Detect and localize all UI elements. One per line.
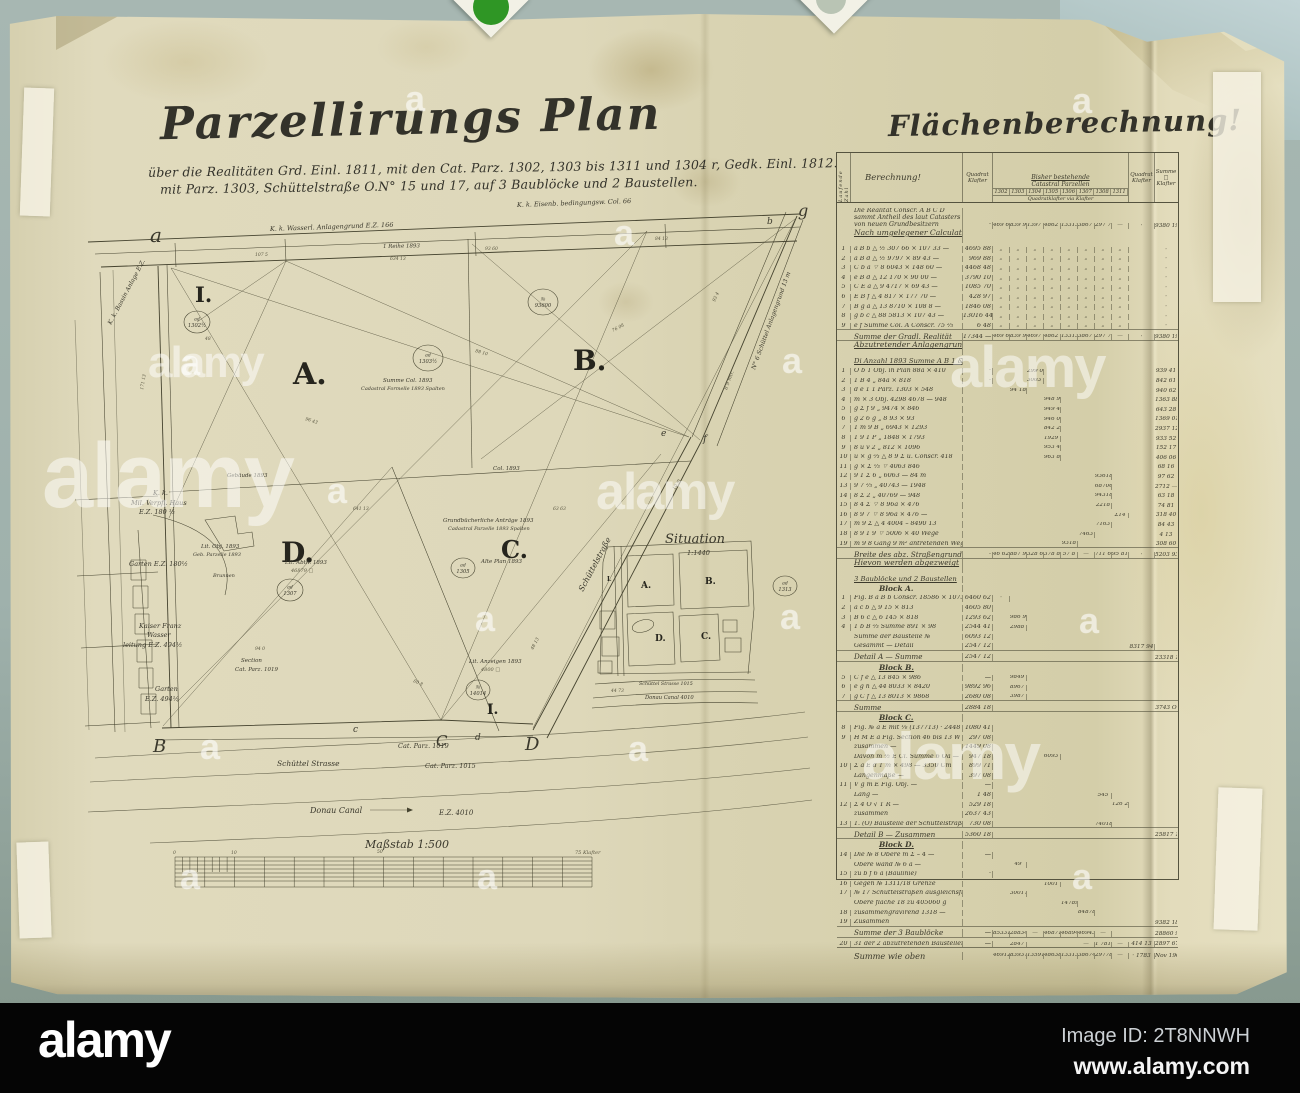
table-cell: — (1112, 223, 1129, 229)
table-cell: 469 62 (993, 334, 1010, 340)
table-cell: · (993, 596, 1010, 602)
table-cell: „ (1061, 266, 1078, 272)
table-cell: g C f △ 13 8013 × 9868 (851, 694, 963, 701)
table-cell: 13 (837, 483, 851, 490)
table-cell: 8967 81 (1010, 685, 1027, 691)
map-label: 641 13 (353, 506, 369, 512)
table-cell: Block D. (851, 841, 963, 849)
table-cell: 9849 71 (1010, 675, 1027, 681)
table-row: 4m × 3 Obj. 4298 4678 — 948948 961363 88 (837, 394, 1178, 404)
table-cell: Längenmaße — (851, 773, 963, 780)
table-cell: Summe der Baustelle № (851, 634, 963, 641)
table-cell: 5 (837, 284, 851, 291)
group-header-line2: Catastral Parzellen (993, 181, 1128, 188)
table-cell: 4695 88 (963, 246, 993, 253)
table-cell: 6093 12 (1044, 754, 1061, 760)
table-cell: „ (1095, 304, 1112, 310)
table-cell: „ (1044, 266, 1061, 272)
map-label: Lit. Anzeigen 1893 (468, 659, 522, 665)
table-cell: „ (1112, 266, 1129, 272)
table-cell: 1 9 1 P „ 1848 × 1793 (851, 435, 963, 442)
table-cell: 13313 68 (1061, 334, 1078, 340)
table-cell: zusammen — (851, 744, 963, 751)
table-cell: 899 71 (963, 763, 993, 770)
table-cell: „ (1044, 323, 1061, 329)
table-row: 41 b B ⅔ Summe 891 × 982544 412988 16 (837, 621, 1178, 631)
table-cell: Di Anzahl 1893 Summe A B 1 & 2 (851, 358, 963, 365)
table-row: 148 Σ 2 „ 40769 — 9489431863 18 (837, 490, 1178, 500)
table-cell: 318 40 (1155, 512, 1177, 518)
map-label: 63 63 (553, 506, 566, 512)
table-cell: 6 (837, 416, 851, 423)
table-cell: 1363 88 (1155, 397, 1177, 403)
table-cell: 8 9 1 9 ⌔ 5006 × 40 Wege (851, 531, 963, 538)
table-cell: H M E a Fig. Section 46 bis 13 W — (851, 735, 963, 742)
table-cell: 428 97 (963, 294, 993, 301)
table-cell: 1846 08 (963, 304, 993, 311)
map-label: 44 73 (610, 688, 624, 694)
table-cell: „ (1027, 247, 1044, 253)
table-cell: 947 18 (963, 754, 993, 761)
table-cell: · (1155, 294, 1177, 300)
table-cell: 3867 47 (1078, 334, 1095, 340)
table-cell: 68706 (1095, 484, 1112, 490)
table-cell: e B d △ 12 170 × 90 00 — (851, 275, 963, 282)
table-cell: 5 (837, 406, 851, 413)
map-label: Wasser (147, 631, 172, 639)
table-cell: „ (1010, 314, 1027, 320)
table-cell: 328 60 (1027, 552, 1044, 558)
table-cell: 1 48 (963, 792, 993, 799)
table-cell: 8 (837, 313, 851, 320)
table-cell: „ (1010, 256, 1027, 262)
table-cell: 97 62 (1155, 474, 1177, 480)
table-cell: „ (1112, 247, 1129, 253)
table-cell: „ (1010, 276, 1027, 282)
table-row: Die Realität Conscr. A B C D sammt Anthe… (837, 203, 1178, 229)
parcel-number-value: 1307 (283, 591, 297, 597)
table-cell: „ (1078, 247, 1095, 253)
table-cell: Σ a E d T m × 498 — 3350 Cm (851, 763, 963, 770)
table-cell: „ (1027, 285, 1044, 291)
table-cell: 11 (837, 782, 851, 789)
table-row: 14Die № 8 Obere m Σ – 4 —— (837, 849, 1178, 859)
table-cell: 842 28 (1044, 426, 1061, 432)
table-row: 8g b c △ 88 5813 × 107 43 —13016 44„„„„„… (837, 310, 1178, 320)
table-cell: 13016 44 (963, 313, 993, 320)
table-cell: 16 (837, 881, 851, 888)
table-cell: 9892 96 (963, 684, 993, 691)
table-cell: 1 781 (1095, 942, 1112, 948)
table-row: Obere wand № 6 a —49 (837, 859, 1178, 869)
map-label: Cadastral Formelle 1893 Spalten (361, 386, 445, 392)
table-cell: 74 81 (1155, 503, 1177, 509)
table-cell: „ (1078, 266, 1095, 272)
table-cell: 839 90½ (1010, 223, 1027, 229)
table-cell: a c b △ 9 15 × 813 (851, 605, 963, 612)
table-cell: „ (1061, 314, 1078, 320)
table-row: 9H M E a Fig. Section 46 bis 13 W —297 0… (837, 732, 1178, 742)
table-cell: 848787 (1078, 910, 1095, 916)
table-cell: 20 (837, 941, 851, 948)
table-row: Summe der Baustelle №6093 12 (837, 631, 1178, 641)
table-cell: 5203 93 (1155, 552, 1177, 558)
table-cell: Die Realität Conscr. A B C D sammt Anthe… (851, 208, 963, 229)
table-cell: 2897 67 (1155, 941, 1177, 947)
table-cell: 9382 18 (1155, 920, 1177, 926)
table-cell: 3 (837, 265, 851, 272)
table-cell: „ (1061, 276, 1078, 282)
parcel-number-label: ad (782, 581, 788, 587)
table-cell: Σ 4 O √ T R — (851, 802, 963, 809)
table-cell: g Σ f 9 „ 9474 × 846 (851, 406, 963, 413)
table-cell: „ (1061, 304, 1078, 310)
table-cell: d e 1 1 Parz. 1303 × 548 (851, 387, 963, 394)
table-cell: 4605 80 (963, 605, 993, 612)
table-cell: — (1112, 953, 1129, 959)
table-cell: Hievon werden abgezweigt (851, 559, 963, 573)
table-cell: — (963, 675, 993, 682)
table-cell: „ (1078, 256, 1095, 262)
alamy-url-text: www.alamy.com (1074, 1053, 1250, 1080)
table-row: Nach umgelegener Calculation (837, 229, 1178, 243)
table-row: 19Zusammen9382 18 (837, 916, 1178, 926)
table-cell: e f Summe Col. A Conscr. 75 ⅔ (851, 323, 963, 330)
map-label: Cat. Parz. 1015 (425, 762, 476, 770)
table-cell: „ (1027, 314, 1044, 320)
table-row: 3C b a ⌔ 8 6043 × 148 60 —4468 48„„„„„„„… (837, 262, 1178, 272)
table-cell: 19 (837, 919, 851, 926)
table-cell: „ (1112, 323, 1129, 329)
table-cell: 5 (837, 675, 851, 682)
table-cell: 953 42 (1044, 445, 1061, 451)
table-cell: „ (1095, 285, 1112, 291)
table-cell: 1 m 9 B „ 6943 × 1293 (851, 425, 963, 432)
table-cell: — (963, 941, 993, 948)
table-cell: 3867 47 (1078, 223, 1095, 229)
table-cell: 10 (837, 454, 851, 461)
mounting-tape-bottom-left (16, 841, 51, 938)
map-label: E.Z. 4010 (438, 809, 474, 817)
table-cell: 94318 (1095, 493, 1112, 499)
table-cell: 85331 (993, 931, 1010, 937)
map-label: Col. 1893 (493, 466, 520, 472)
map-label: 80 8 (412, 678, 424, 688)
table-row: Davon m ½ E Cl. Summe 6 Oa —947 186093 1… (837, 751, 1178, 761)
table-cell: 1. (O) Baustelle der Schüttelstraße № (851, 821, 963, 828)
map-label: 94 0 (255, 646, 265, 652)
table-cell: Detail B — Zusammen (851, 831, 963, 839)
table-row: 7B g a △ 13 8710 × 108 8 —1846 08„„„„„„„… (837, 301, 1178, 311)
table-cell: 469431 (1078, 931, 1095, 937)
table-cell: Nach umgelegener Calculation (851, 229, 963, 243)
table-cell: 12 (837, 473, 851, 480)
map-label: D. (655, 634, 666, 644)
table-cell: „ (1044, 247, 1061, 253)
map-label: A. (292, 357, 327, 392)
table-cell: Nov 1900 (1155, 953, 1177, 959)
map-label: Schüttelstraße (577, 536, 613, 593)
table-cell: 406 06 (1155, 455, 1177, 461)
table-cell: „ (1078, 323, 1095, 329)
table-cell: 95 81 (1112, 552, 1129, 558)
table-cell: „ (1095, 256, 1112, 262)
table-cell: 2937 12 (1155, 426, 1177, 432)
table-row: 3B 6 c △ 6 145 × 8181293 62986 98 (837, 612, 1178, 622)
table-header: Laufende Zahl Berechnung! Quadrat Klafte… (837, 153, 1178, 203)
table-row: 21 B 4 „ 84a × 818·3003 12842 61 (837, 375, 1178, 385)
table-row: 6e g h △ 44 8033 × 84209892 968967 81 (837, 681, 1178, 691)
table-cell: 486384 (1044, 953, 1061, 959)
table-cell: 2 (837, 378, 851, 385)
table-cell: 2883412 (1010, 931, 1027, 937)
table-row: Block D. (837, 839, 1178, 849)
table-cell: g 2 6 g „ 8 93 × 93 (851, 416, 963, 423)
table-row: 17№ 17 Schüttelstraßen ausgleichsfläche3… (837, 887, 1178, 897)
table-cell: „ (1112, 314, 1129, 320)
table-cell: · (1129, 552, 1155, 558)
table-cell: · (1155, 256, 1177, 262)
table-cell: 730 08 (963, 821, 993, 828)
table-cell: „ (1061, 295, 1078, 301)
table-cell: 297 78 (1095, 334, 1112, 340)
map-label: Grundbücherliche Anträge 1893 (443, 518, 534, 524)
parcel-number-value: 1302½ (188, 322, 206, 329)
map-label: 93 60 (485, 246, 498, 252)
area-calculation-table: Laufende Zahl Berechnung! Quadrat Klafte… (836, 152, 1179, 880)
table-cell: E B f △ 4 817 × 177 70 — (851, 294, 963, 301)
table-cell: — (1112, 942, 1129, 948)
table-row: Detail B — Zusammen5360 1825817 12 (837, 827, 1178, 839)
table-cell: 8 (837, 435, 851, 442)
table-cell: 68 16 (1155, 464, 1177, 470)
table-cell: zusammen (851, 811, 963, 818)
table-cell: „ (1044, 304, 1061, 310)
table-row: 158 4 Σ ⌔ 8 96a × 476221874 81 (837, 499, 1178, 509)
table-cell: „ (993, 314, 1010, 320)
table-cell: 297 08 (963, 735, 993, 742)
table-header-parcel-group: Bisher bestehende Catastral Parzellen 13… (993, 153, 1129, 202)
table-cell: 6093 12 (963, 634, 993, 641)
table-cell: 28860 93 (1155, 931, 1177, 937)
table-cell: · (1129, 334, 1155, 340)
table-cell: „ (1078, 304, 1095, 310)
table-cell: 414 13 (1129, 941, 1155, 947)
table-cell: 8 (837, 725, 851, 732)
table-cell: 19 (837, 541, 851, 548)
map-label: Mil. Verpfl. Haus (130, 499, 187, 507)
table-cell: „ (1027, 304, 1044, 310)
table-cell: 57 8 (1061, 552, 1078, 558)
map-label: 84 13 (655, 236, 668, 242)
table-cell: 1369 01 (1155, 416, 1177, 422)
table-cell: Die № 8 Obere m Σ – 4 — (851, 852, 963, 859)
map-label: e (661, 429, 666, 439)
mounting-tape-bottom-right (1214, 787, 1263, 930)
parcellation-map: ad1302½ad1303½№93600ad1307ad1305№14014ad… (55, 90, 815, 920)
map-label: A. (640, 581, 651, 591)
map-label: Geb. Parzelle 1893 (193, 552, 241, 558)
table-cell: 308 60 (1155, 541, 1177, 547)
table-cell: „ (1027, 323, 1044, 329)
table-cell: 4468 48 (963, 265, 993, 272)
table-cell: 529 18 (963, 802, 993, 809)
table-cell: „ (993, 276, 1010, 282)
table-cell: 2988 16 (1010, 625, 1027, 631)
map-label: a (150, 223, 162, 247)
table-cell: „ (1027, 276, 1044, 282)
table-cell: „ (1061, 256, 1078, 262)
table-row: 5C E a △ 9 4717 × 69 43 —1085 70„„„„„„„„… (837, 281, 1178, 291)
map-label: f (702, 434, 709, 445)
table-cell: B g a △ 13 8710 × 108 8 — (851, 304, 963, 311)
table-cell: 2547 12 (963, 643, 993, 650)
table-cell: Obere fläche 18 zu 405060 g (851, 900, 963, 907)
table-row: zusammen2637 43 (837, 808, 1178, 818)
table-cell: 3 (837, 387, 851, 394)
table-cell: m 9 Σ △ 4 4004 – 8490 13 (851, 521, 963, 528)
table-row: 15zu b f 6 a (Baulinie)· (837, 868, 1178, 878)
table-cell: zu b f 6 a (Baulinie) (851, 871, 963, 878)
map-label: B. (573, 344, 606, 377)
table-cell: 887 97 (1010, 552, 1027, 558)
image-id-text: Image ID: 2T8NNWH (1061, 1025, 1250, 1048)
table-cell: „ (1044, 285, 1061, 291)
table-cell: 933 52 (1155, 436, 1177, 442)
table-cell: Block C. (851, 714, 963, 722)
table-row: Block B. (837, 662, 1178, 672)
map-label: Schüttel Strasse 1015 (639, 681, 693, 687)
map-label: Schüttel Strasse (277, 759, 340, 768)
table-cell: 1449 08 (963, 744, 993, 751)
table-cell: „ (1027, 266, 1044, 272)
table-cell: № 17 Schüttelstraßen ausgleichsfläche (851, 890, 963, 897)
table-cell: 1 b B ⅔ Summe 891 × 98 (851, 624, 963, 631)
table-cell: 13 (837, 821, 851, 828)
map-label: N° 6 Schüttel Anlagengrund 13 m (750, 271, 792, 372)
table-cell: „ (993, 304, 1010, 310)
table-cell: 46 62 (993, 552, 1010, 558)
table-cell: 3790 10 (963, 275, 993, 282)
table-row: 19m 9 8 Gang 9 m² antretenden Wegs931830… (837, 538, 1178, 548)
parcel-number-label: № (475, 685, 481, 691)
table-row: 2a c b △ 9 15 × 8134605 80 (837, 602, 1178, 612)
table-row: 139 7 ⅔ „ 40743 — 1948687062712 — (837, 480, 1178, 490)
table-cell: 9380 19 (1155, 223, 1177, 229)
table-cell: · (1155, 314, 1177, 320)
map-label: 634 13 (390, 256, 406, 262)
map-label: K. k. Bassin Anlage E.Z. (106, 258, 147, 327)
table-cell: 939 41 (1155, 368, 1177, 374)
table-cell: Σ14 (1112, 513, 1129, 519)
table-cell: „ (1044, 314, 1061, 320)
table-cell: 2218 (1095, 503, 1112, 509)
table-cell: 4 13 (1155, 532, 1177, 538)
map-label: 1 Reihe 1893 (383, 243, 421, 250)
table-cell: 1 B 4 „ 84a × 818 (851, 378, 963, 385)
table-row: Block A. (837, 583, 1178, 593)
map-label: Cadastral Parzelle 1893 Spalten (448, 526, 530, 532)
table-cell: 940 62 (1155, 388, 1177, 394)
table-row: 129 1 Σ 6 „ 6063 — 84 m9361897 62 (837, 470, 1178, 480)
table-row: 9e f Summe Col. A Conscr. 75 ⅔6 48„„„„„„… (837, 320, 1178, 330)
table-cell: · (1155, 275, 1177, 281)
table-cell: Obere wand № 6 a — (851, 862, 963, 869)
table-cell: „ (1010, 285, 1027, 291)
table-cell: · 1783 (1129, 953, 1155, 959)
map-label: 8 9 mtr. (723, 370, 736, 391)
stock-photo-page: Parzellirungs Plan über die Realitäten G… (0, 0, 1300, 1093)
table-cell: 9380 19 (1155, 334, 1177, 340)
table-cell: 297 78 (1095, 223, 1112, 229)
table-cell: „ (1010, 295, 1027, 301)
table-cell: 963 81 (1044, 455, 1061, 461)
map-label: 96 43 (304, 416, 318, 426)
table-cell: „ (1027, 295, 1044, 301)
table-cell: 2884 18 (963, 705, 993, 712)
table-row: Summe der 3 Baublöcke—853312883412—46871… (837, 926, 1178, 938)
table-cell: 3867431 (1078, 953, 1095, 959)
table-row: 12Σ 4 O √ T R —529 18126 23 (837, 799, 1178, 809)
map-label: c (353, 725, 358, 735)
map-label: K. k. Eisenb. bedingungsw. Col. 66 (516, 197, 632, 209)
table-cell: „ (1095, 266, 1112, 272)
parcel-number-label: ad (194, 317, 200, 323)
table-cell: „ (1010, 266, 1027, 272)
table-cell: 15 (837, 871, 851, 878)
table-cell: 3 (837, 615, 851, 622)
table-cell: 135918 (1027, 953, 1044, 959)
table-cell: Summe (851, 704, 963, 712)
map-label: C. (701, 632, 711, 642)
table-cell: 378 8 (1044, 552, 1061, 558)
table-cell: 126 23 (1112, 802, 1129, 808)
table-cell: „ (993, 323, 1010, 329)
area-calculation-title: Flächenberechnung! (888, 103, 1243, 143)
table-header-tail2: Summe □ Klafter (1155, 153, 1177, 202)
table-cell: „ (1061, 247, 1078, 253)
table-cell: Detail A — Summe (851, 653, 963, 661)
table-cell: · (1155, 323, 1177, 329)
table-cell: 9 (837, 323, 851, 330)
map-label: leitung E.Z. 494½ (123, 641, 182, 649)
map-label: Garten E.Z. 180½ (129, 560, 188, 568)
table-cell: 63 18 (1155, 493, 1177, 499)
table-body: Die Realität Conscr. A B C D sammt Anthe… (837, 203, 1178, 963)
table-cell: „ (1078, 276, 1095, 282)
map-label: 4800 □ (480, 667, 500, 673)
table-cell: 4697 10 (1027, 334, 1044, 340)
mounting-tape-top-left (20, 88, 54, 217)
table-row: Block C. (837, 712, 1178, 722)
map-label: Lit. Obj. 1893 (200, 544, 240, 550)
table-row: Obere fläche 18 zu 405060 g14789 (837, 897, 1178, 907)
table-cell: Gesammt — Detail (851, 643, 963, 650)
table-cell: 4689431 (1061, 931, 1078, 937)
map-label: 48 13 (529, 637, 541, 652)
table-cell: 14789 (1061, 901, 1078, 907)
table-cell: — (1095, 931, 1112, 937)
table-cell: 17344 — (963, 334, 993, 341)
table-cell: „ (1095, 247, 1112, 253)
table-cell: · (963, 871, 993, 878)
table-row: Gesammt — Detail2547 128317 94 (837, 640, 1178, 650)
scale-bar (175, 857, 592, 887)
table-row: 6E B f △ 4 817 × 177 70 —428 97„„„„„„„„· (837, 291, 1178, 301)
parcel-number-value: 1305 (456, 569, 469, 575)
table-cell: „ (1112, 304, 1129, 310)
table-cell: Lang — (851, 792, 963, 799)
